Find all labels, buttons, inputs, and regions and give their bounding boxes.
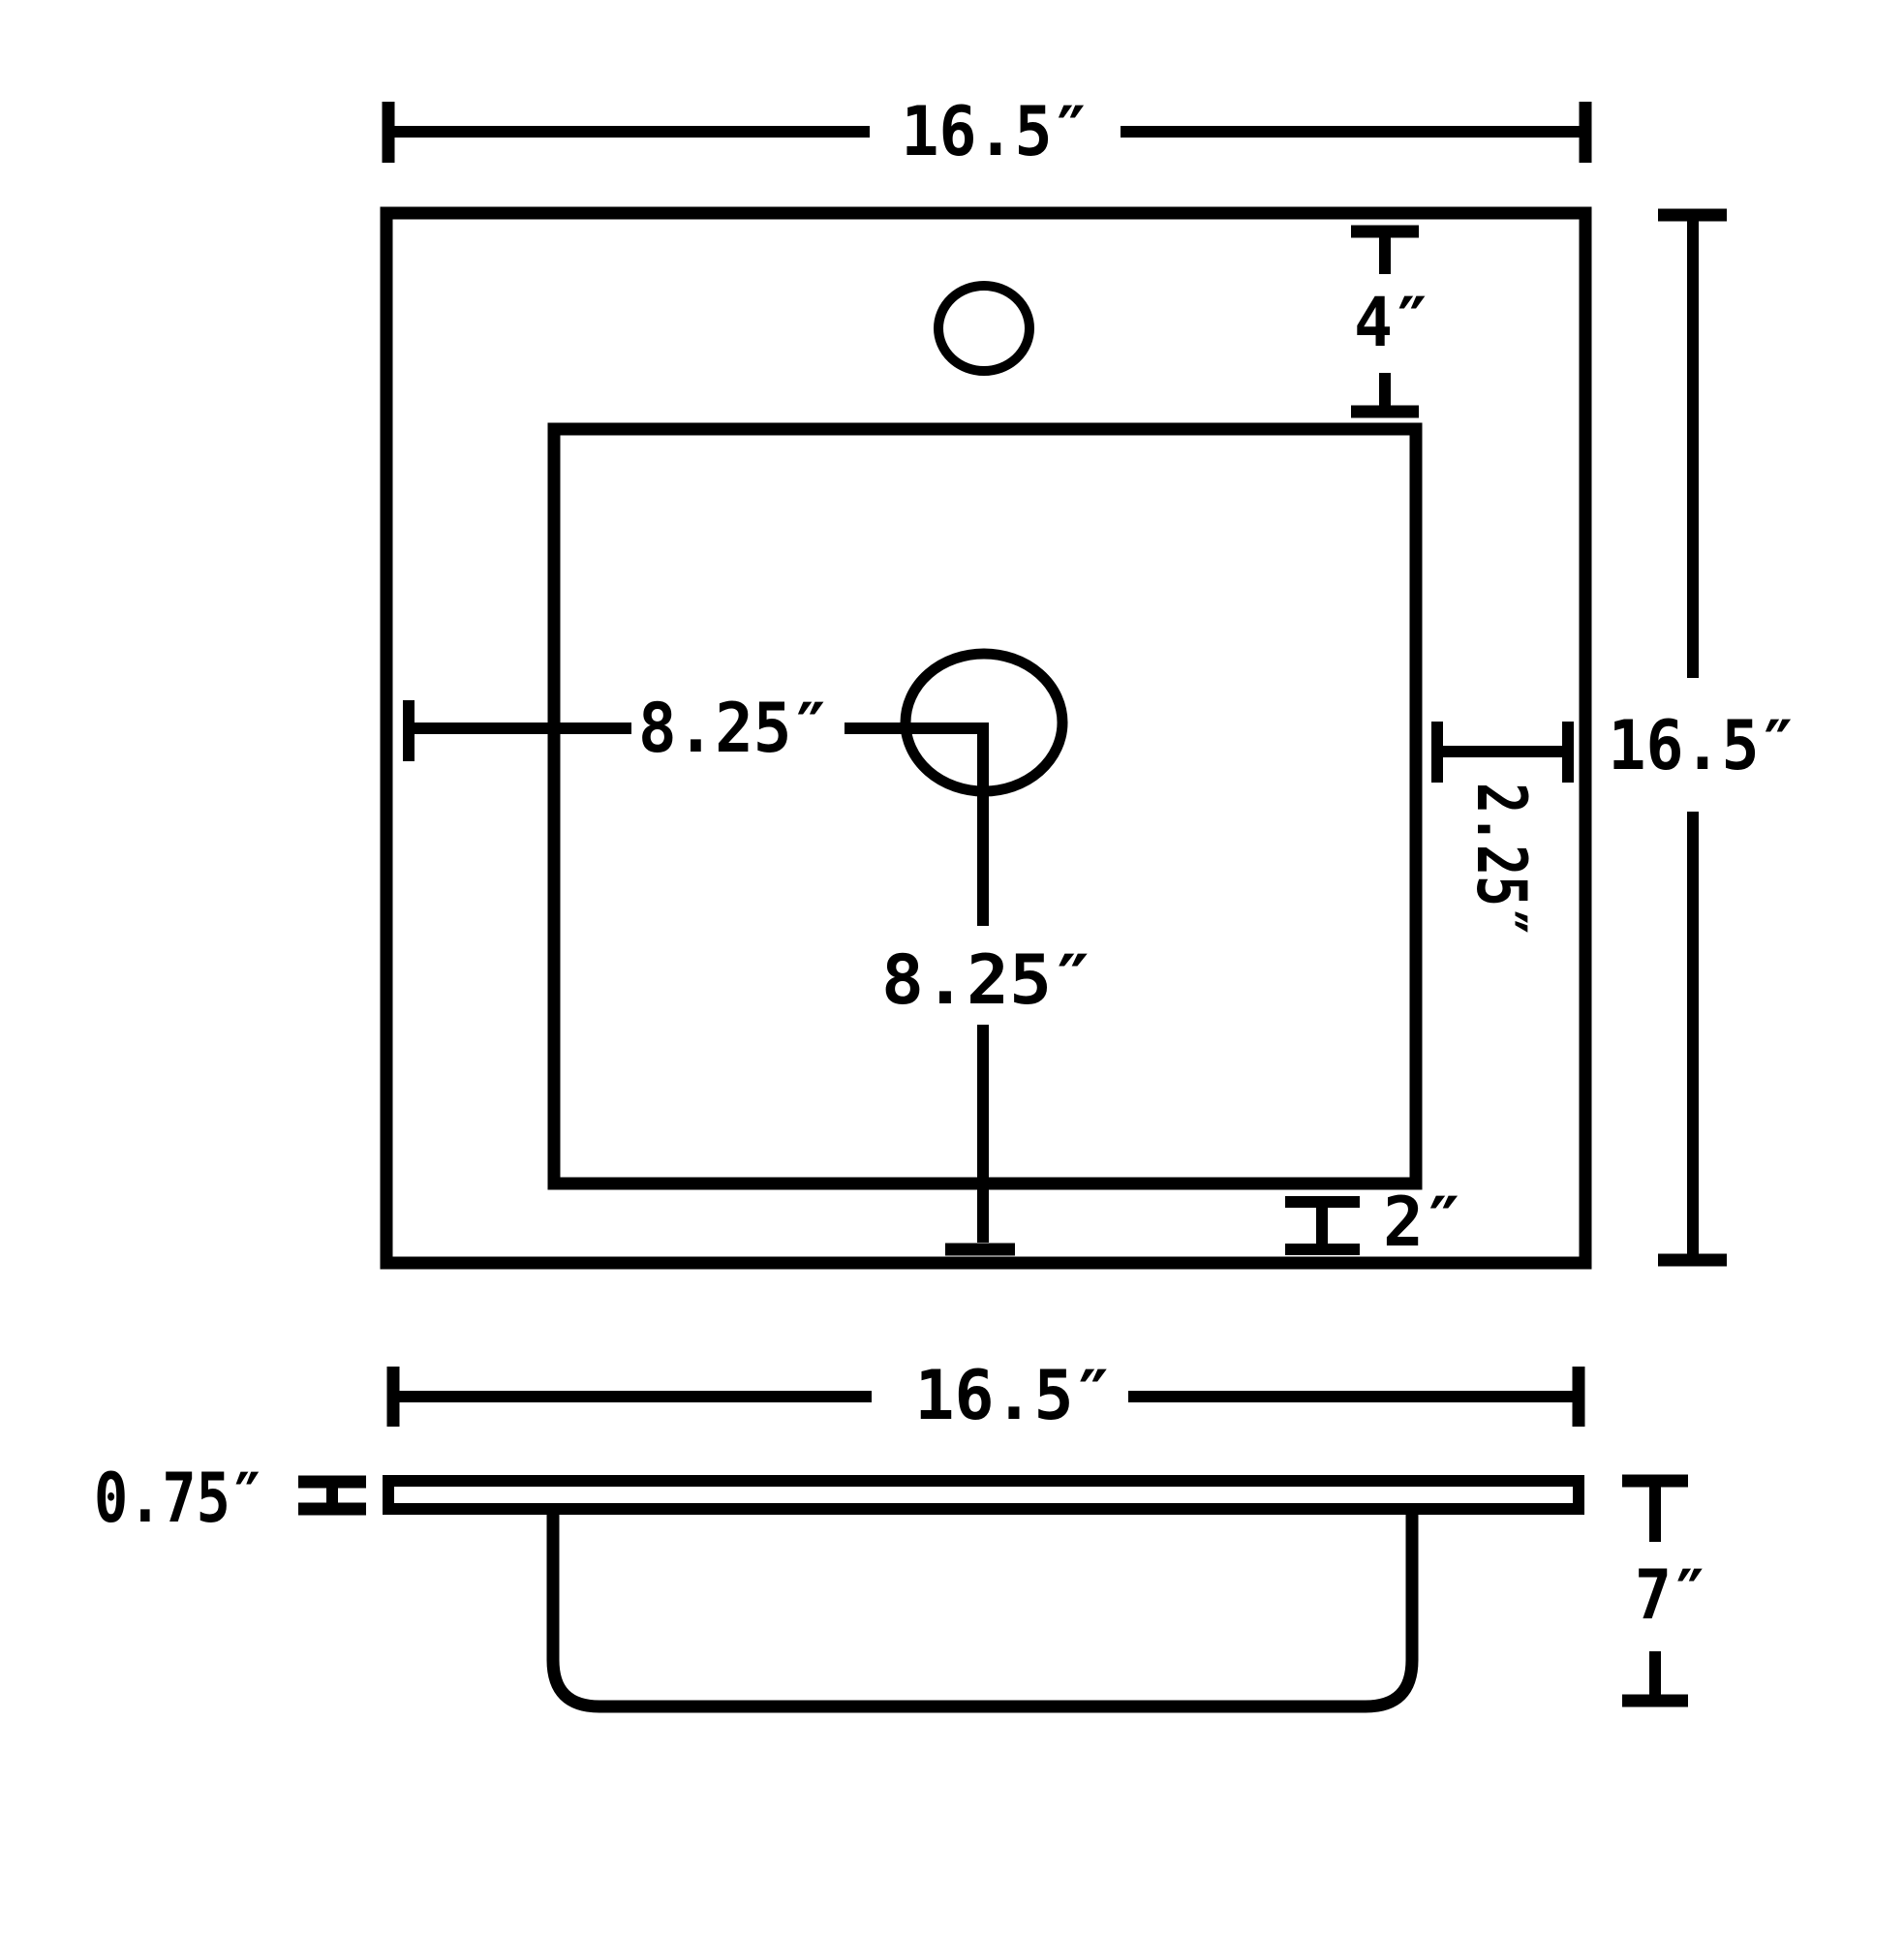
dim-faucet-offset-label: 4″	[1354, 283, 1431, 362]
dim-side-width-label: 16.5″	[915, 1356, 1114, 1435]
dim-drain-to-bottom-label: 8.25″	[881, 940, 1094, 1020]
dim-top-width-label: 16.5″	[902, 92, 1090, 171]
dim-right-height-label: 16.5″	[1609, 706, 1797, 785]
dim-drain-from-left-label: 8.25″	[638, 689, 830, 768]
sink-dimension-drawing: 16.5″ 16.5″ 4″ 8.25″	[0, 0, 1904, 1937]
dim-bottom-rim-label: 2″	[1383, 1183, 1464, 1262]
dim-bowl-depth-label: 7″	[1635, 1555, 1708, 1635]
dim-deck-thickness-label: 0.75″	[94, 1459, 264, 1538]
drawing-svg: 16.5″ 16.5″ 4″ 8.25″	[0, 0, 1904, 1937]
dim-right-rim-label: 2.25″	[1461, 783, 1541, 938]
